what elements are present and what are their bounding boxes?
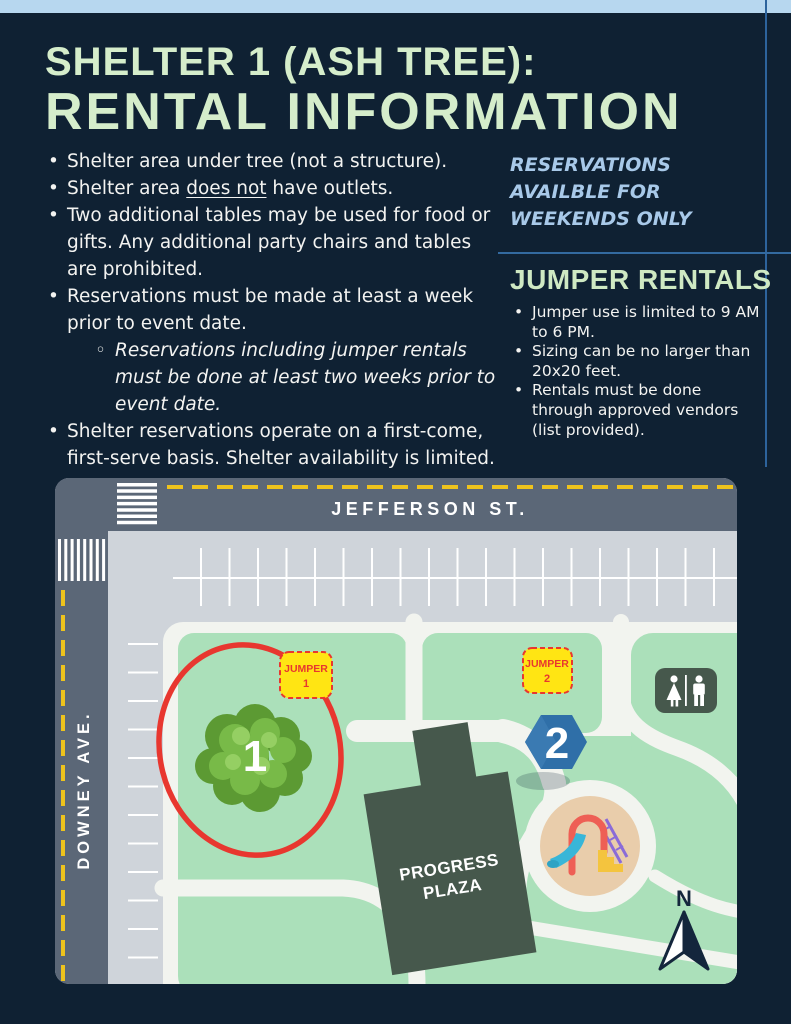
jumper-1-number: 1 [303, 678, 309, 690]
jumper-1-sign: JUMPER 1 [280, 652, 332, 698]
reservations-note: RESERVATIONS AVAILBLE FOR WEEKENDS ONLY [510, 152, 760, 233]
jumper-bullet-item: Rentals must be done through approved ve… [510, 381, 760, 440]
rental-info-section: Shelter area under tree (not a structure… [45, 148, 497, 472]
bullet-text: Reservations must be made at least a wee… [67, 286, 473, 334]
section-divider [498, 252, 791, 254]
sub-bullet-list: Reservations including jumper rentals mu… [95, 337, 497, 418]
bullet-text-underlined: does not [186, 178, 266, 199]
top-accent-bar [0, 0, 791, 13]
park-lawn-middle [422, 633, 602, 733]
bullet-item: Shelter reservations operate on a first-… [45, 418, 497, 472]
jumper-2-sign: JUMPER 2 [523, 648, 572, 693]
bullet-item: Shelter area under tree (not a structure… [45, 148, 497, 175]
downey-avenue-label: DOWNEY AVE. [75, 710, 93, 869]
page-title-line2: RENTAL INFORMATION [45, 82, 683, 142]
park-map-svg: JEFFERSON ST. DOWNEY AVE. [55, 478, 737, 984]
jumper-rentals-section: Jumper use is limited to 9 AM to 6 PM. S… [510, 303, 760, 440]
jumper-1-label: JUMPER [284, 663, 328, 675]
reservations-note-line: WEEKENDS ONLY [510, 206, 760, 233]
playground-sand [540, 796, 640, 896]
info-bullet-list: Shelter area under tree (not a structure… [45, 148, 497, 472]
flyer-page: { "page": { "background": "#0f2133", "to… [0, 0, 791, 1024]
page-title-line1: SHELTER 1 (ASH TREE): [45, 40, 536, 85]
jumper-2-label: JUMPER [525, 658, 569, 670]
bullet-text-pre: Shelter area [67, 178, 186, 199]
bullet-text-post: have outlets. [267, 178, 394, 199]
jefferson-street-label: JEFFERSON ST. [331, 499, 529, 519]
hex-marker-number: 2 [545, 719, 569, 768]
jumper-bullet-item: Jumper use is limited to 9 AM to 6 PM. [510, 303, 760, 342]
vertical-accent-line [765, 0, 767, 467]
sub-bullet-item: Reservations including jumper rentals mu… [95, 337, 497, 418]
compass-north-label: N [676, 886, 692, 911]
jumper-rentals-heading: JUMPER RENTALS [510, 264, 772, 296]
jumper-bullet-item: Sizing can be no larger than 20x20 feet. [510, 342, 760, 381]
jumper-2-number: 2 [544, 673, 550, 685]
park-map: JEFFERSON ST. DOWNEY AVE. [55, 478, 737, 984]
bullet-item: Reservations must be made at least a wee… [45, 283, 497, 418]
bullet-item: Two additional tables may be used for fo… [45, 202, 497, 283]
jumper-rentals-list: Jumper use is limited to 9 AM to 6 PM. S… [510, 303, 760, 440]
shelter-1-marker: 1 [243, 732, 267, 781]
restroom-icon [655, 668, 717, 713]
bullet-item: Shelter area does not have outlets. [45, 175, 497, 202]
reservations-note-line: AVAILBLE FOR [510, 179, 760, 206]
reservations-note-line: RESERVATIONS [510, 152, 760, 179]
